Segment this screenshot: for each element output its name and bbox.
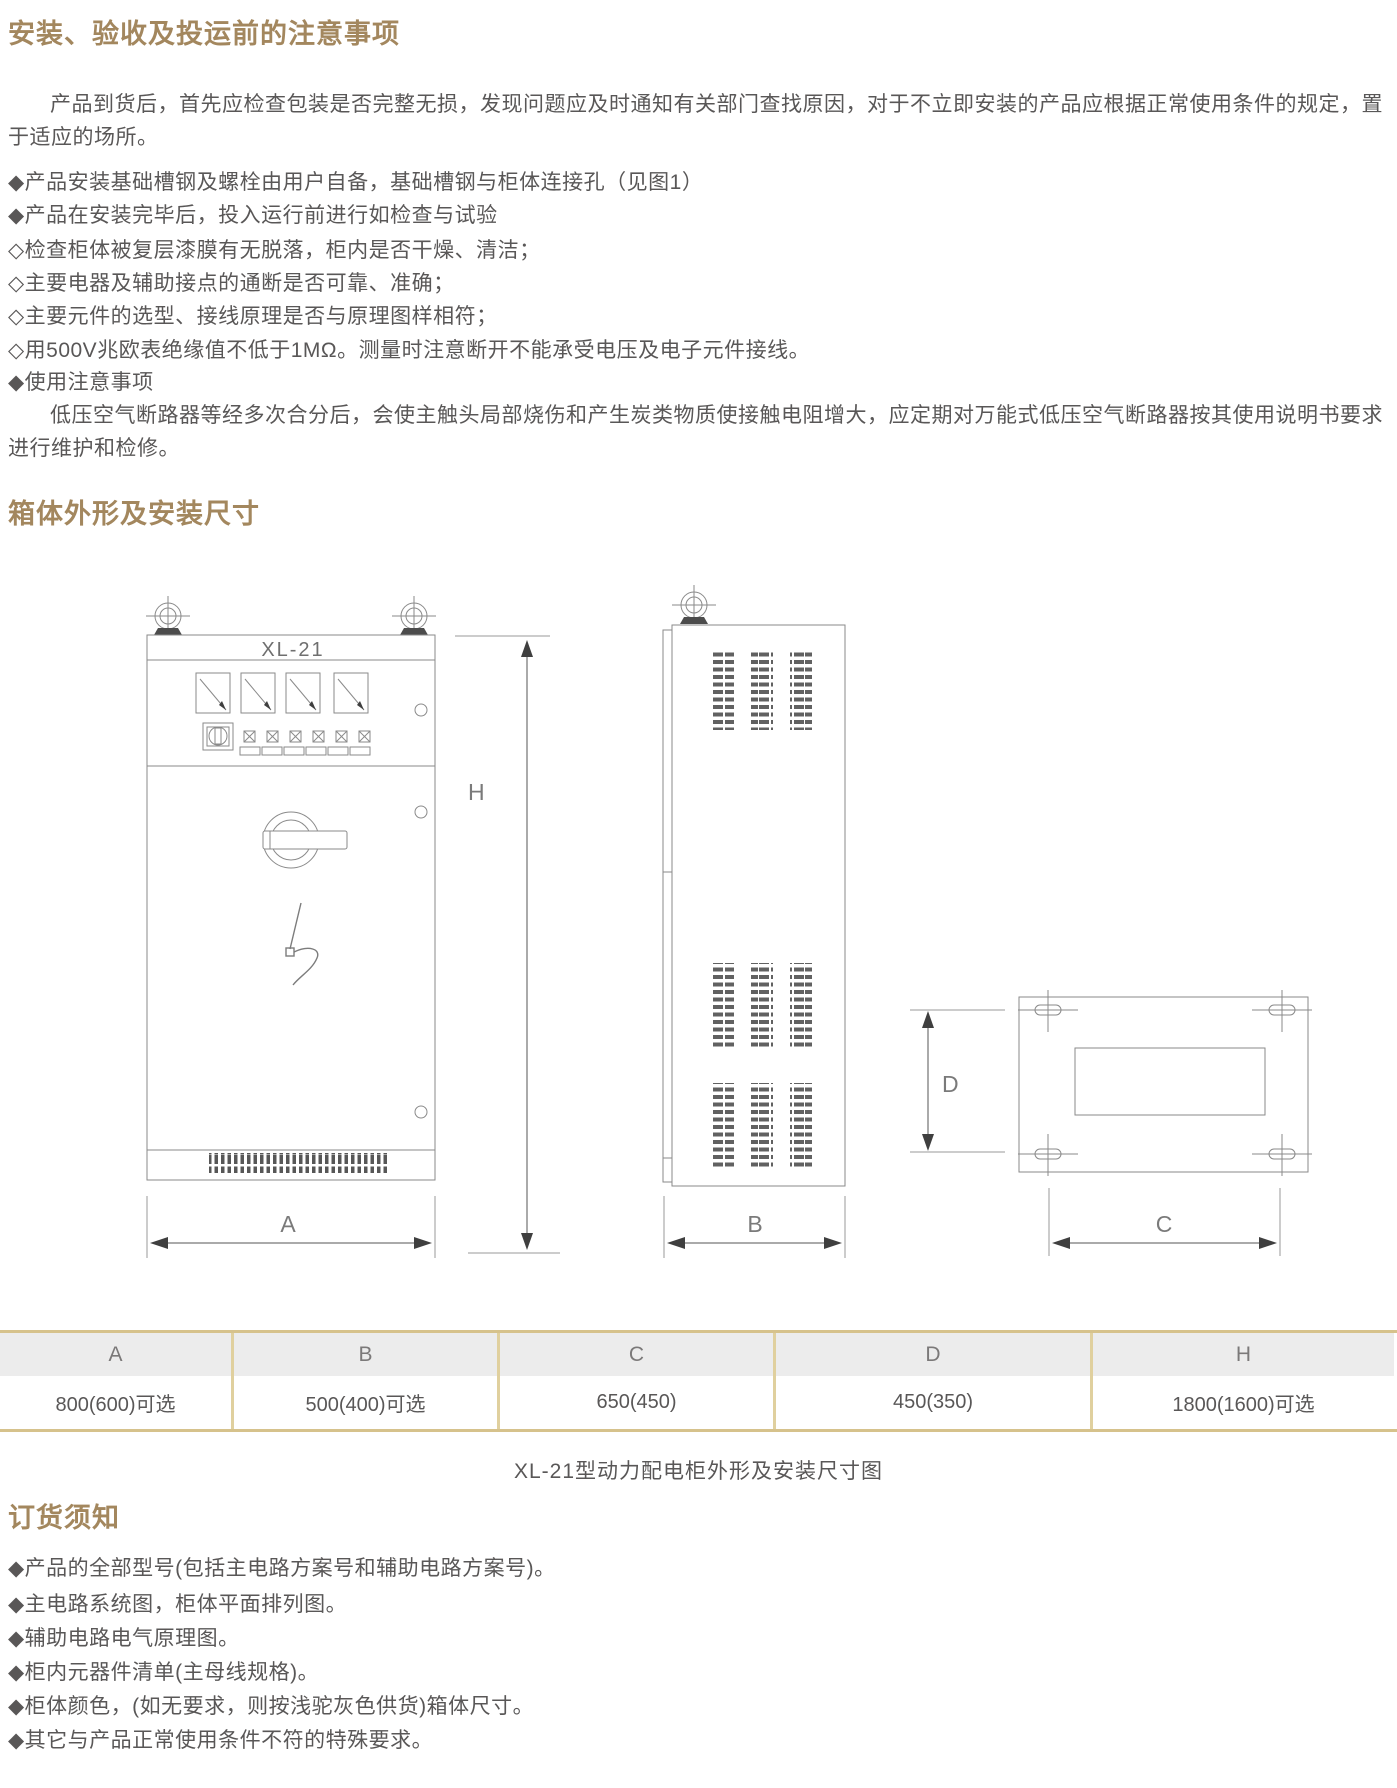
- figure-caption: XL-21型动力配电柜外形及安装尺寸图: [0, 1455, 1397, 1485]
- plan-view: [1018, 990, 1312, 1176]
- dimension-value: 450(350): [773, 1376, 1090, 1429]
- table-header-row: A B C D H: [0, 1333, 1397, 1376]
- dimension-value: 500(400)可选: [231, 1376, 497, 1429]
- order-section-title: 订货须知: [8, 1496, 120, 1535]
- dim-label-h: H: [468, 779, 485, 805]
- front-view: XL-21: [146, 596, 436, 1180]
- dimension-b: B: [664, 1196, 845, 1258]
- install-item: ◇检查柜体被复层漆膜有无脱落，柜内是否干燥、清洁；: [8, 234, 541, 264]
- dim-label-c: C: [1156, 1211, 1173, 1237]
- model-label: XL-21: [261, 639, 324, 661]
- install-item: ◇主要电器及辅助接点的通断是否可靠、准确；: [8, 267, 455, 297]
- mounting-slot-icon: [1252, 1134, 1312, 1176]
- column-header: B: [231, 1333, 497, 1376]
- lifting-eye-icon: [146, 596, 190, 635]
- selector-switch-icon: [203, 723, 233, 750]
- install-item: ◆使用注意事项: [8, 366, 154, 396]
- mounting-slot-icon: [1018, 1134, 1078, 1176]
- side-vent-grilles: [712, 650, 812, 1170]
- cable-entry-cutout: [1075, 1048, 1265, 1115]
- door-handle-icon: [263, 812, 347, 868]
- dimension-d: D: [910, 1010, 1005, 1152]
- front-cabinet-outline: [147, 635, 435, 1180]
- order-item: ◆主电路系统图，柜体平面排列图。: [8, 1588, 347, 1618]
- hinge-pin: [415, 1106, 427, 1118]
- order-item: ◆产品的全部型号(包括主电路方案号和辅助电路方案号)。: [8, 1552, 556, 1582]
- hinge-pin: [415, 806, 427, 818]
- usage-note-paragraph: 低压空气断路器等经多次合分后，会使主触头局部烧伤和产生炭类物质使接触电阻增大，应…: [8, 399, 1388, 465]
- dim-label-b: B: [747, 1211, 762, 1237]
- dimension-table: A B C D H 800(600)可选 500(400)可选 650(450)…: [0, 1330, 1397, 1432]
- column-header: H: [1090, 1333, 1394, 1376]
- indicator-lamps: [240, 731, 370, 755]
- dimension-value: 800(600)可选: [0, 1376, 231, 1429]
- install-item: ◆产品在安装完毕后，投入运行前进行如检查与试验: [8, 199, 498, 229]
- install-item: ◇用500V兆欧表绝缘值不低于1MΩ。测量时注意断开不能承受电压及电子元件接线。: [8, 334, 810, 364]
- install-intro-paragraph: 产品到货后，首先应检查包装是否完整无损，发现问题应及时通知有关部门查找原因，对于…: [8, 88, 1388, 154]
- order-item: ◆辅助电路电气原理图。: [8, 1622, 240, 1652]
- order-item: ◆柜体颜色，(如无要求，则按浅驼灰色供货)箱体尺寸。: [8, 1690, 534, 1720]
- dim-label-a: A: [280, 1211, 296, 1237]
- hinge-pin: [415, 704, 427, 716]
- side-view: [663, 585, 845, 1186]
- install-item: ◇主要元件的选型、接线原理是否与原理图样相符；: [8, 300, 498, 330]
- column-header: C: [497, 1333, 773, 1376]
- column-header: A: [0, 1333, 231, 1376]
- order-item: ◆柜内元器件清单(主母线规格)。: [8, 1656, 319, 1686]
- front-vent-strip: [209, 1153, 389, 1173]
- table-bottom-border: [0, 1429, 1397, 1432]
- dimension-value: 1800(1600)可选: [1090, 1376, 1394, 1429]
- panel-meters: [196, 673, 368, 713]
- lightning-symbol: [286, 903, 318, 985]
- lifting-eye-icon: [392, 596, 436, 635]
- dimension-a: A: [147, 1196, 435, 1258]
- install-item: ◆产品安装基础槽钢及螺栓由用户自备，基础槽钢与柜体连接孔（见图1）: [8, 166, 703, 196]
- side-door-edge: [663, 630, 672, 1182]
- dim-label-d: D: [942, 1071, 959, 1097]
- mounting-slot-icon: [1018, 990, 1078, 1032]
- order-item: ◆其它与产品正常使用条件不符的特殊要求。: [8, 1724, 433, 1754]
- dimension-value: 650(450): [497, 1376, 773, 1429]
- dimension-h: H: [455, 636, 560, 1253]
- install-section-title: 安装、验收及投运前的注意事项: [8, 12, 400, 51]
- column-header: D: [773, 1333, 1090, 1376]
- mounting-slot-icon: [1252, 990, 1312, 1032]
- catalog-page: 安装、验收及投运前的注意事项 产品到货后，首先应检查包装是否完整无损，发现问题应…: [0, 0, 1397, 1788]
- lifting-eye-icon: [672, 585, 716, 624]
- dimensions-section-title: 箱体外形及安装尺寸: [8, 492, 260, 531]
- table-value-row: 800(600)可选 500(400)可选 650(450) 450(350) …: [0, 1376, 1397, 1429]
- dimension-c: C: [1049, 1188, 1280, 1256]
- cabinet-dimension-drawing: XL-21: [0, 580, 1397, 1280]
